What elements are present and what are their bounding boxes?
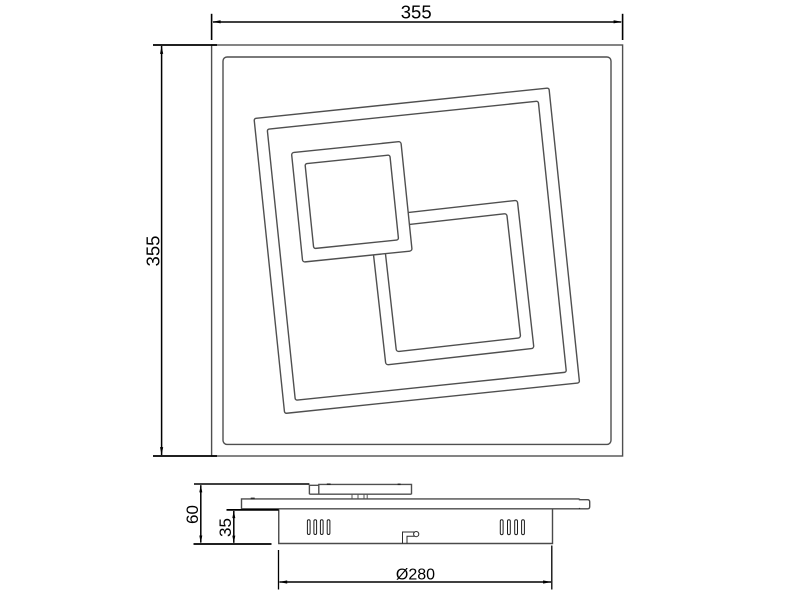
svg-text:35: 35 <box>216 518 235 537</box>
svg-text:Ø280: Ø280 <box>396 566 435 583</box>
svg-text:355: 355 <box>142 236 163 267</box>
svg-text:60: 60 <box>183 505 202 524</box>
svg-text:355: 355 <box>401 2 432 23</box>
